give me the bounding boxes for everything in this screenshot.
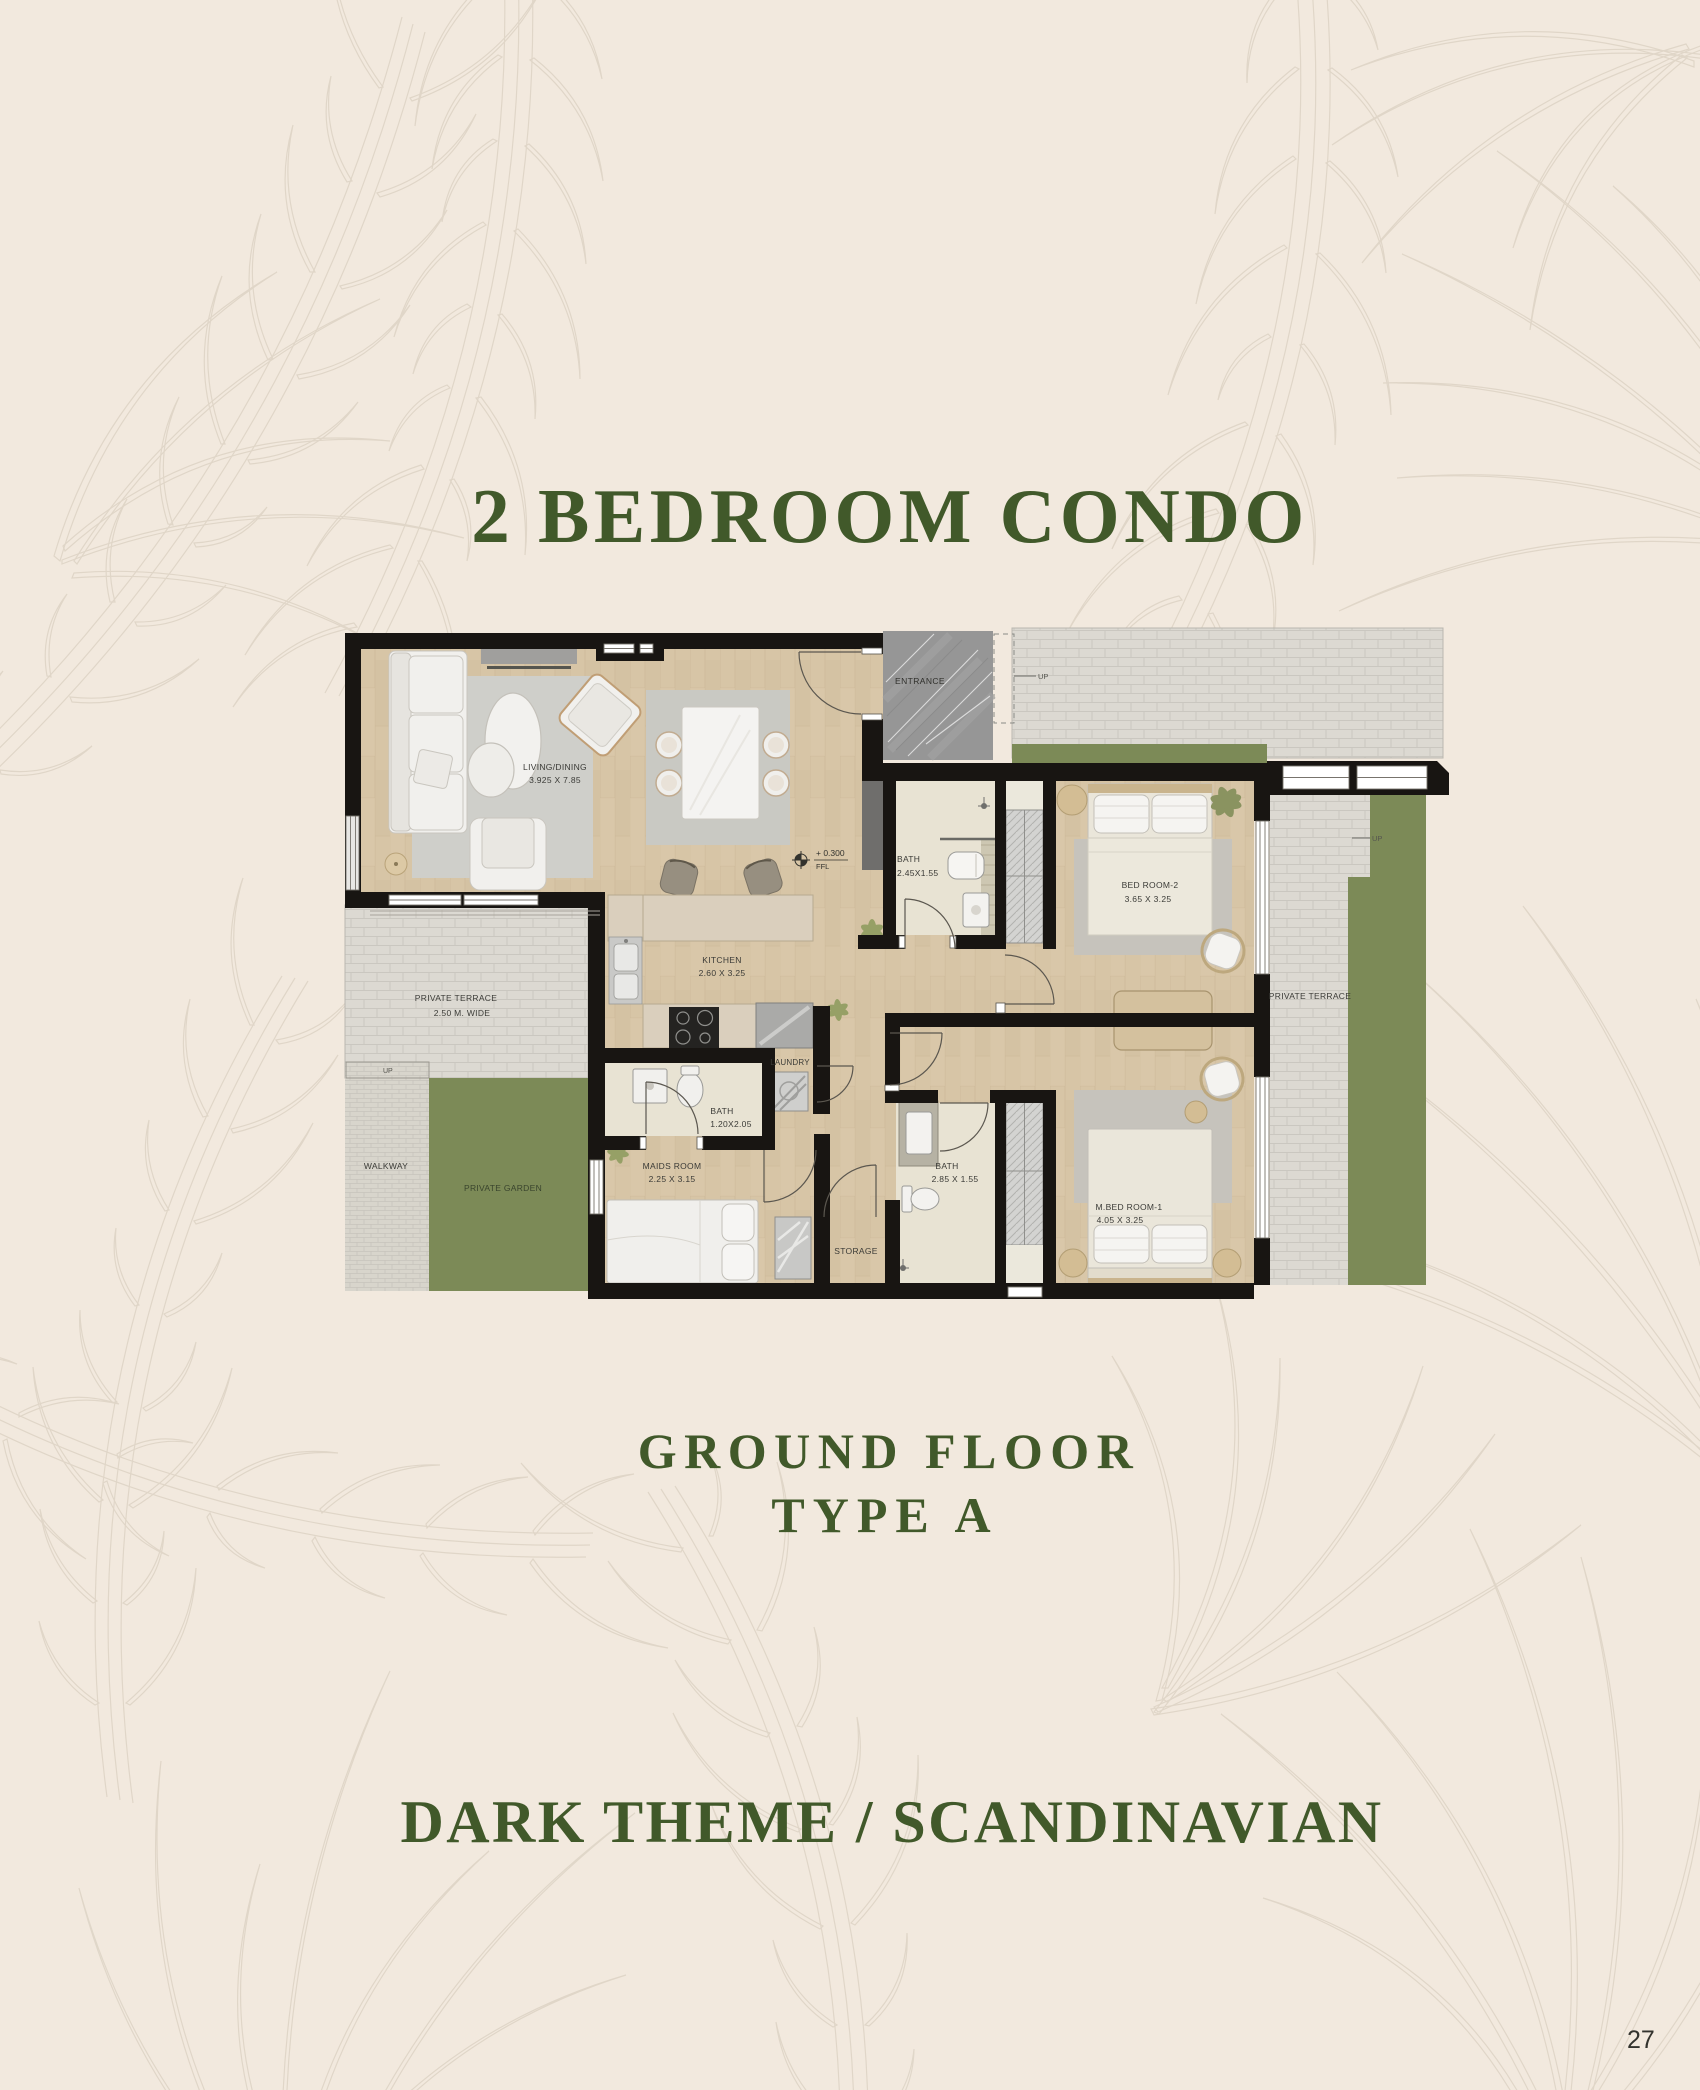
- svg-text:LIVING/DINING: LIVING/DINING: [523, 762, 587, 772]
- svg-text:+ 0.300: + 0.300: [816, 848, 845, 858]
- svg-text:4.05 X 3.25: 4.05 X 3.25: [1097, 1215, 1144, 1225]
- svg-text:LAUNDRY: LAUNDRY: [770, 1058, 810, 1067]
- svg-text:WALKWAY: WALKWAY: [364, 1161, 408, 1171]
- svg-text:2.60 X 3.25: 2.60 X 3.25: [699, 968, 746, 978]
- svg-text:1.20X2.05: 1.20X2.05: [710, 1119, 751, 1129]
- svg-text:STORAGE: STORAGE: [834, 1246, 878, 1256]
- svg-text:M.BED ROOM-1: M.BED ROOM-1: [1096, 1202, 1163, 1212]
- svg-text:2.85 X 1.55: 2.85 X 1.55: [932, 1174, 979, 1184]
- svg-text:BATH: BATH: [935, 1161, 958, 1171]
- svg-text:UP: UP: [383, 1068, 393, 1075]
- svg-text:MAIDS ROOM: MAIDS ROOM: [643, 1161, 702, 1171]
- svg-text:BATH: BATH: [897, 854, 920, 864]
- svg-text:2.50 M. WIDE: 2.50 M. WIDE: [434, 1008, 491, 1018]
- svg-text:PRIVATE TERRACE: PRIVATE TERRACE: [415, 993, 497, 1003]
- svg-text:FFL: FFL: [816, 862, 829, 871]
- svg-text:KITCHEN: KITCHEN: [702, 955, 741, 965]
- svg-text:UP: UP: [1372, 834, 1382, 843]
- svg-text:ENTRANCE: ENTRANCE: [895, 676, 945, 686]
- svg-text:PRIVATE GARDEN: PRIVATE GARDEN: [464, 1183, 542, 1193]
- svg-text:3.65 X 3.25: 3.65 X 3.25: [1125, 894, 1172, 904]
- svg-text:UP: UP: [1038, 672, 1048, 681]
- svg-text:2.25 X 3.15: 2.25 X 3.15: [649, 1174, 696, 1184]
- svg-text:2.45X1.55: 2.45X1.55: [897, 868, 938, 878]
- svg-text:BED ROOM-2: BED ROOM-2: [1122, 880, 1179, 890]
- svg-text:BATH: BATH: [710, 1106, 733, 1116]
- svg-text:PRIVATE TERRACE: PRIVATE TERRACE: [1269, 991, 1351, 1001]
- svg-text:3.925 X 7.85: 3.925 X 7.85: [529, 775, 581, 785]
